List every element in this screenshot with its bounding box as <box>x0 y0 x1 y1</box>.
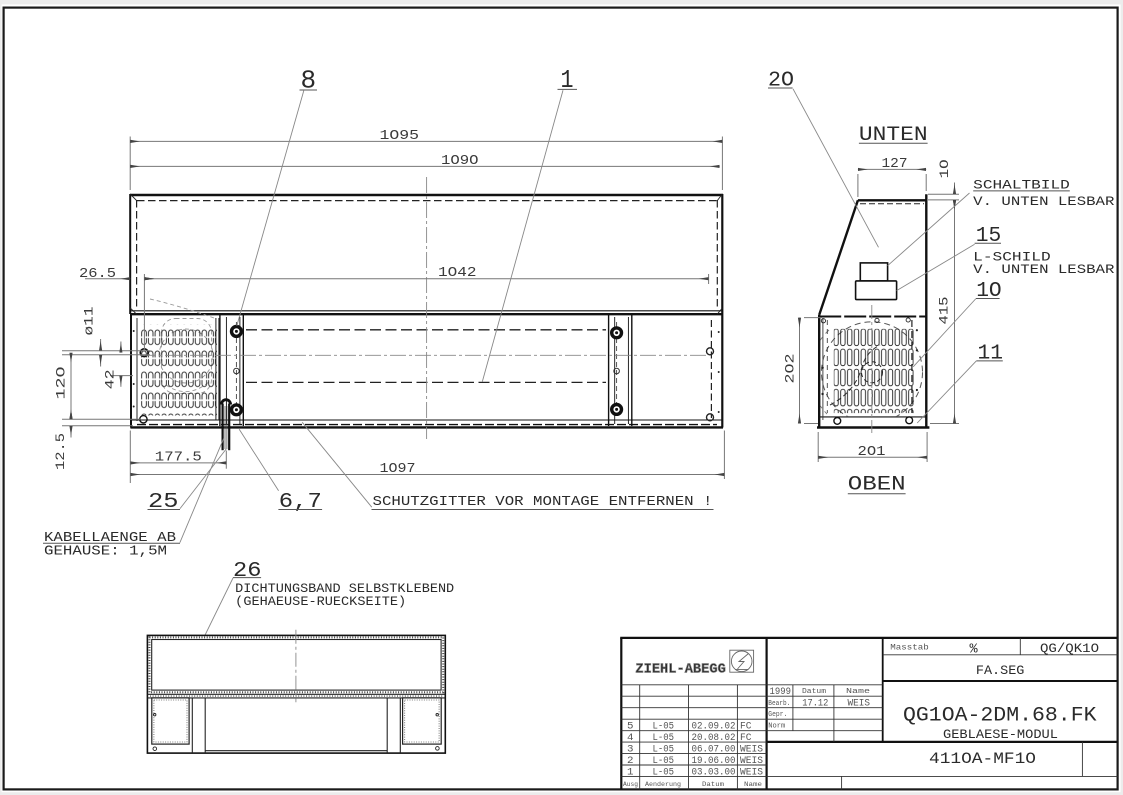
svg-text:WEIS: WEIS <box>740 744 763 755</box>
svg-text:2O1: 2O1 <box>858 444 886 460</box>
svg-text:V. UNTEN LESBAR: V. UNTEN LESBAR <box>973 263 1115 277</box>
svg-text:1O: 1O <box>937 159 952 178</box>
svg-text:42: 42 <box>102 369 117 389</box>
svg-text:26.5: 26.5 <box>79 266 116 282</box>
svg-text:26: 26 <box>233 559 262 583</box>
svg-text:SCHUTZGITTER VOR MONTAGE ENTFE: SCHUTZGITTER VOR MONTAGE ENTFERNEN ! <box>373 494 713 510</box>
svg-text:WEIS: WEIS <box>740 767 763 778</box>
svg-text:L-05: L-05 <box>653 722 675 733</box>
svg-text:OBEN: OBEN <box>848 474 906 497</box>
svg-text:QG/QK1O: QG/QK1O <box>1040 642 1099 656</box>
svg-text:L-05: L-05 <box>653 744 675 755</box>
svg-text:12O: 12O <box>54 366 69 399</box>
svg-text:1O95: 1O95 <box>380 128 420 144</box>
svg-text:20.08.02: 20.08.02 <box>692 733 736 744</box>
svg-text:L-05: L-05 <box>653 733 675 744</box>
svg-text:25: 25 <box>148 490 179 514</box>
svg-text:411OA-MF1O: 411OA-MF1O <box>929 750 1036 768</box>
svg-text:4: 4 <box>627 733 634 744</box>
svg-text:1O42: 1O42 <box>438 265 477 281</box>
svg-text:1: 1 <box>627 767 634 778</box>
svg-text:Norm: Norm <box>768 723 785 731</box>
svg-text:3: 3 <box>627 744 634 755</box>
svg-text:Ausg: Ausg <box>623 781 638 788</box>
svg-text:1999: 1999 <box>770 686 792 698</box>
svg-text:Masstab: Masstab <box>890 644 929 653</box>
svg-text:03.03.00: 03.03.00 <box>692 767 736 778</box>
svg-text:2O: 2O <box>768 69 794 93</box>
svg-text:15: 15 <box>976 224 1002 248</box>
svg-text:%: % <box>970 642 979 657</box>
svg-text:ZIEHL-ABEGG: ZIEHL-ABEGG <box>635 662 725 678</box>
svg-text:415: 415 <box>936 297 951 325</box>
svg-text:ø11: ø11 <box>82 306 97 335</box>
svg-text:L-05: L-05 <box>653 767 675 778</box>
svg-text:127: 127 <box>882 156 908 172</box>
svg-text:Bearb.: Bearb. <box>768 700 790 708</box>
svg-text:L-05: L-05 <box>653 756 675 767</box>
svg-text:2O2: 2O2 <box>782 354 797 384</box>
svg-text:1O9O: 1O9O <box>441 153 479 169</box>
svg-text:DICHTUNGSBAND SELBSTKLEBEND: DICHTUNGSBAND SELBSTKLEBEND <box>235 582 454 596</box>
svg-text:QG1OA-2DM.68.FK: QG1OA-2DM.68.FK <box>903 705 1097 728</box>
svg-text:12.5: 12.5 <box>53 433 68 470</box>
svg-text:8: 8 <box>301 66 317 96</box>
svg-text:GEBLAESE-MODUL: GEBLAESE-MODUL <box>943 728 1058 742</box>
svg-text:1: 1 <box>561 65 574 95</box>
svg-text:Datum: Datum <box>702 781 724 788</box>
svg-text:WEIS: WEIS <box>848 699 871 710</box>
svg-text:FC: FC <box>740 722 752 733</box>
svg-text:11: 11 <box>978 342 1004 366</box>
svg-text:GEHAUSE: 1,5M: GEHAUSE: 1,5M <box>44 544 167 560</box>
svg-text:FA.SEG: FA.SEG <box>976 664 1025 678</box>
svg-text:02.09.02: 02.09.02 <box>692 722 736 733</box>
svg-text:17.12: 17.12 <box>802 699 828 710</box>
svg-text:6,7: 6,7 <box>279 490 322 514</box>
svg-text:Gepr.: Gepr. <box>768 711 787 719</box>
svg-text:1O: 1O <box>976 279 1002 303</box>
svg-text:(GEHAEUSE-RUECKSEITE): (GEHAEUSE-RUECKSEITE) <box>235 595 406 609</box>
svg-text:5: 5 <box>627 722 634 733</box>
svg-text:FC: FC <box>740 733 752 744</box>
svg-text:19.06.00: 19.06.00 <box>692 756 736 767</box>
svg-text:WEIS: WEIS <box>740 756 763 767</box>
svg-text:1O97: 1O97 <box>380 461 416 477</box>
svg-text:V. UNTEN LESBAR: V. UNTEN LESBAR <box>973 195 1115 209</box>
svg-text:Name: Name <box>846 688 870 696</box>
svg-text:Aenderung: Aenderung <box>645 781 681 788</box>
svg-text:2: 2 <box>627 756 634 767</box>
svg-text:177.5: 177.5 <box>155 449 202 465</box>
svg-text:Datum: Datum <box>802 688 826 696</box>
svg-text:06.07.00: 06.07.00 <box>692 744 736 755</box>
svg-text:Name: Name <box>744 781 762 788</box>
